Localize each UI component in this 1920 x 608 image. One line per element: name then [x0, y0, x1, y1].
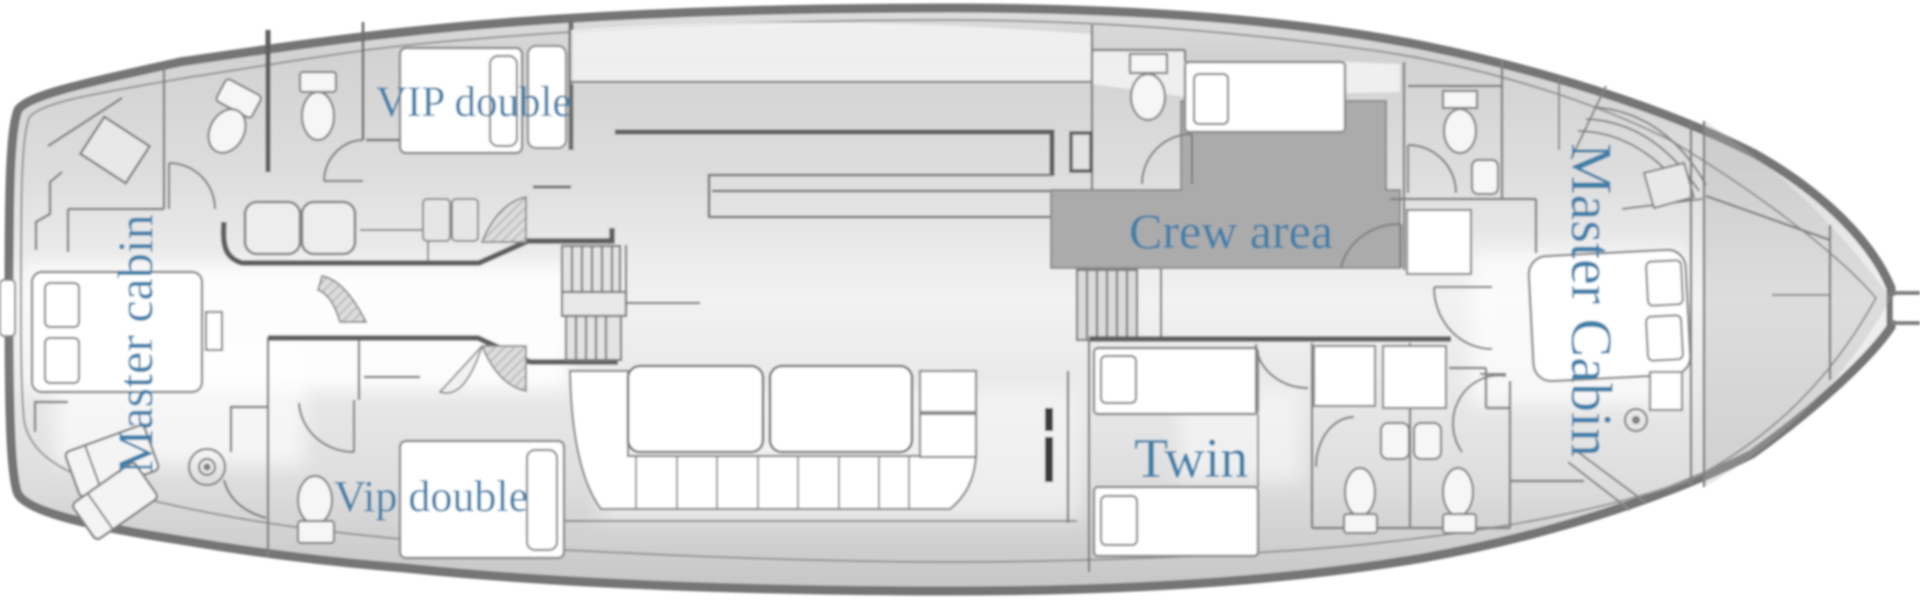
svg-text:Vip double: Vip double: [334, 472, 528, 521]
svg-text:Master cabin: Master cabin: [107, 214, 163, 474]
svg-text:Twin: Twin: [1134, 428, 1248, 490]
svg-text:VIP double: VIP double: [376, 79, 571, 126]
svg-text:Crew area: Crew area: [1129, 203, 1333, 259]
svg-text:Master Cabin: Master Cabin: [1559, 143, 1624, 457]
